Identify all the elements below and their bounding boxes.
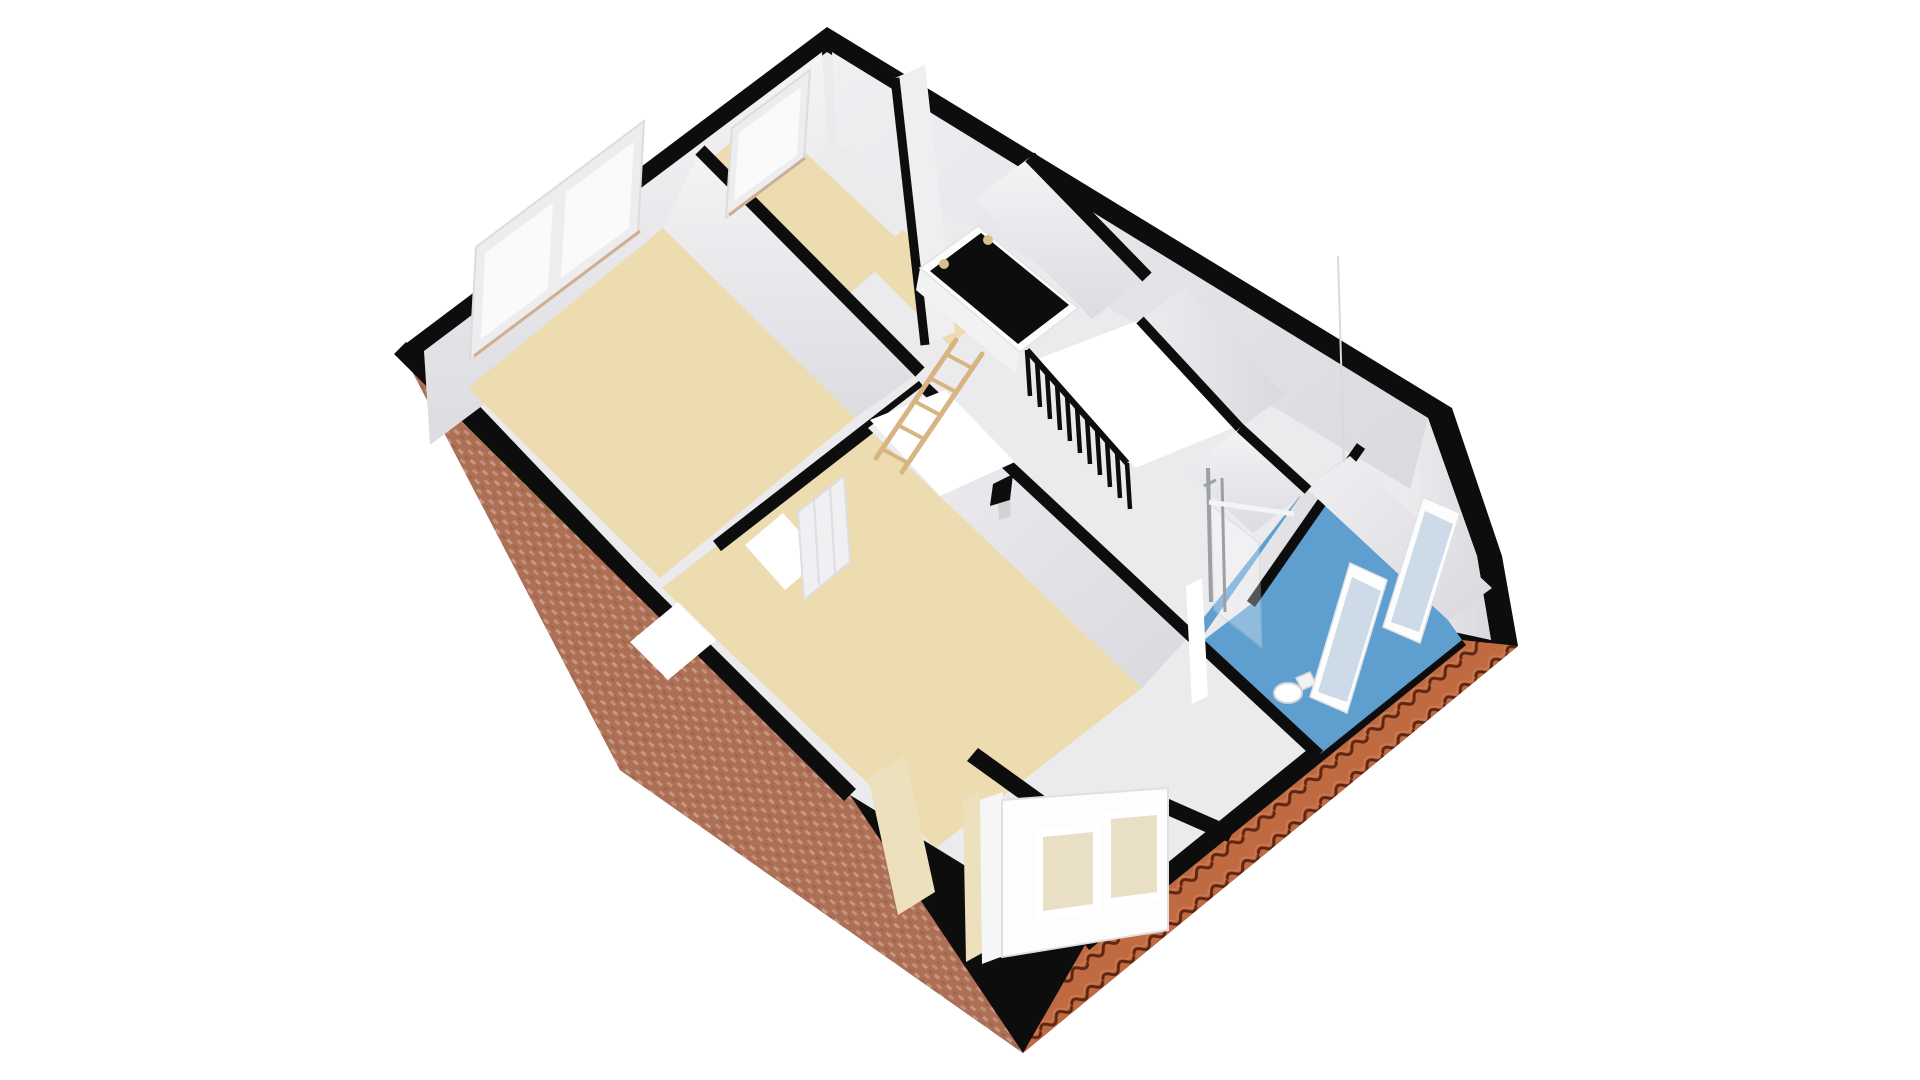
hatch-spotlight bbox=[939, 259, 949, 269]
dormer-window-pane bbox=[1111, 815, 1157, 898]
railing-baluster bbox=[1127, 463, 1130, 509]
toilet-bowl bbox=[1274, 683, 1302, 703]
floor-plan-canvas bbox=[0, 0, 1920, 1080]
floor-plan-rendering bbox=[0, 0, 1920, 1080]
dormer-window-pane bbox=[1043, 832, 1093, 911]
hatch-spotlight bbox=[983, 235, 993, 245]
railing-baluster bbox=[1107, 441, 1110, 487]
